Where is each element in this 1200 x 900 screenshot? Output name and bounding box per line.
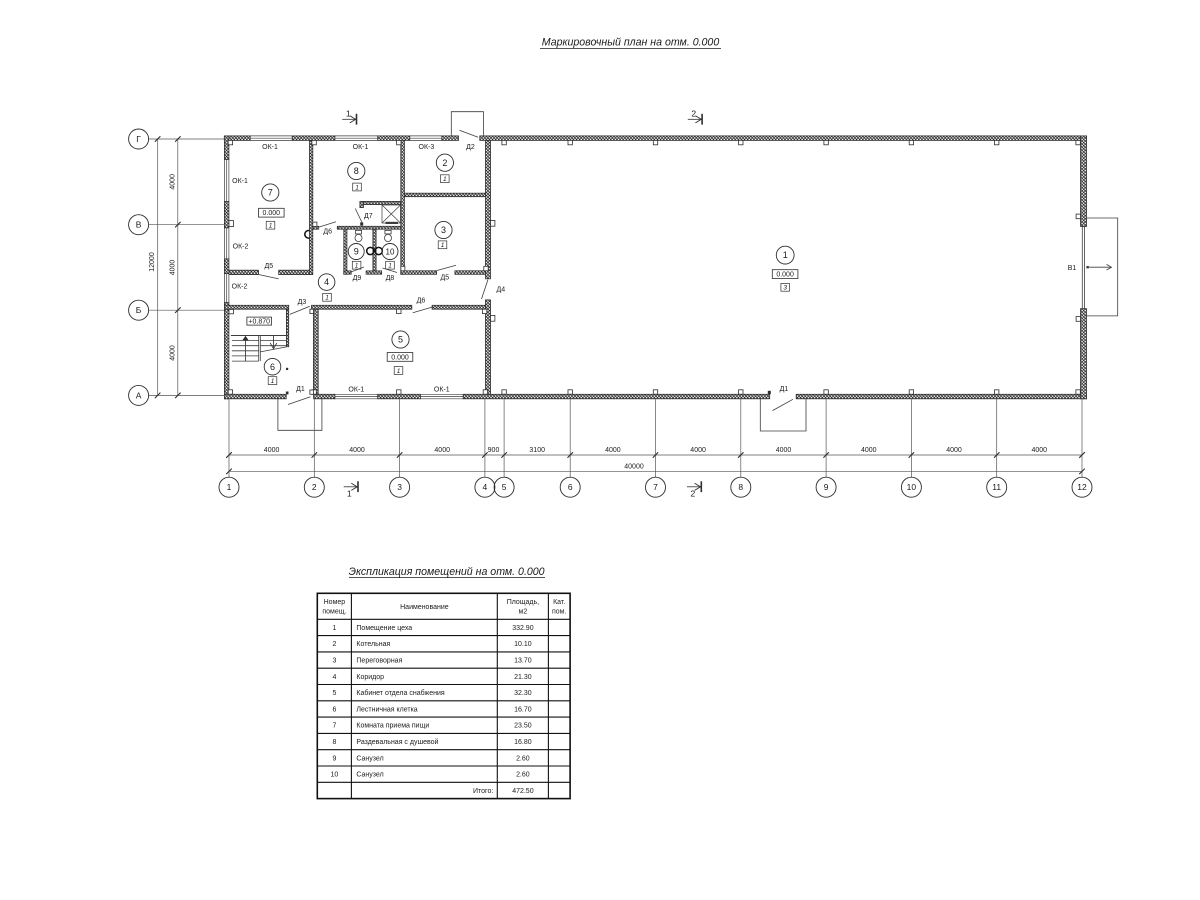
svg-text:3: 3 [441,225,446,235]
svg-text:Д7: Д7 [364,213,373,220]
svg-text:Д8: Д8 [386,275,395,282]
svg-text:Д1: Д1 [296,386,305,393]
svg-text:4: 4 [483,482,488,492]
svg-text:ОК-1: ОК-1 [232,178,248,185]
svg-text:7: 7 [653,482,658,492]
svg-text:Маркировочный план на отм. 0.0: Маркировочный план на отм. 0.000 [542,37,720,49]
svg-text:1: 1 [355,184,359,191]
svg-text:4000: 4000 [169,345,176,361]
svg-text:Д1: Д1 [780,386,789,393]
svg-text:Д5: Д5 [264,263,273,270]
svg-text:Санузел: Санузел [356,772,383,779]
svg-text:4000: 4000 [776,447,792,454]
svg-text:8: 8 [738,482,743,492]
svg-text:7: 7 [268,188,273,198]
svg-text:ОК-2: ОК-2 [232,284,248,291]
svg-text:Д6: Д6 [323,229,332,236]
svg-text:472.50: 472.50 [512,788,534,795]
svg-text:2: 2 [442,158,447,168]
svg-text:Коридор: Коридор [356,674,384,681]
svg-text:9: 9 [332,755,336,762]
svg-text:м2: м2 [519,608,528,615]
svg-text:1: 1 [227,482,232,492]
svg-text:+0.870: +0.870 [248,319,270,326]
svg-text:Д4: Д4 [496,286,505,293]
svg-text:1: 1 [443,176,447,183]
svg-text:4: 4 [324,277,329,287]
svg-text:2: 2 [691,108,696,118]
svg-text:8: 8 [354,166,359,176]
svg-text:12000: 12000 [149,252,156,272]
svg-text:Кат.: Кат. [553,599,565,606]
svg-text:Номер: Номер [324,599,346,606]
svg-text:Котельная: Котельная [356,641,390,648]
svg-text:Лестничная клетка: Лестничная клетка [356,706,417,713]
svg-text:1: 1 [332,625,336,632]
svg-text:332.90: 332.90 [512,625,534,632]
svg-text:6: 6 [270,362,275,372]
svg-text:1: 1 [783,250,788,260]
svg-text:Д2: Д2 [466,144,475,151]
svg-text:32.30: 32.30 [514,690,532,697]
svg-text:Кабинет отдела снабжения: Кабинет отдела снабжения [356,689,444,697]
svg-text:10: 10 [331,772,339,779]
svg-text:2.60: 2.60 [516,772,530,779]
svg-text:Раздевальная с душевой: Раздевальная с душевой [356,738,438,746]
svg-text:1: 1 [269,223,273,230]
svg-text:900: 900 [488,447,500,454]
svg-text:3: 3 [397,482,402,492]
svg-text:5: 5 [398,335,403,345]
svg-text:9: 9 [824,482,829,492]
svg-text:16.70: 16.70 [514,706,532,713]
svg-text:13.70: 13.70 [514,658,532,665]
svg-text:5: 5 [332,690,336,697]
svg-text:ОК-3: ОК-3 [419,144,435,151]
svg-text:ОК-2: ОК-2 [233,243,249,250]
svg-text:Экспликация помещений на отм.: Экспликация помещений на отм. 0.000 [349,566,545,578]
svg-text:1: 1 [347,488,352,498]
svg-text:4000: 4000 [605,447,621,454]
svg-text:16.80: 16.80 [514,739,532,746]
svg-text:4000: 4000 [861,447,877,454]
svg-text:ОК-1: ОК-1 [348,387,364,394]
svg-text:0.000: 0.000 [263,210,281,217]
svg-text:11: 11 [992,482,1001,492]
svg-text:пом.: пом. [552,608,566,615]
svg-text:4000: 4000 [264,447,280,454]
svg-text:4000: 4000 [690,447,706,454]
svg-text:1: 1 [346,108,351,118]
svg-text:В1: В1 [1068,265,1077,272]
svg-text:12: 12 [1077,482,1087,492]
svg-text:0.000: 0.000 [391,354,409,361]
svg-text:1: 1 [271,378,275,385]
svg-text:4000: 4000 [169,260,176,276]
svg-text:1: 1 [355,263,359,270]
svg-text:Д5: Д5 [440,274,449,281]
svg-text:1: 1 [388,263,392,270]
svg-text:В: В [136,220,142,230]
svg-text:1: 1 [325,295,329,302]
svg-text:ОК-1: ОК-1 [434,387,450,394]
svg-text:А: А [136,390,142,400]
svg-text:Д3: Д3 [298,299,307,306]
svg-text:4000: 4000 [349,447,365,454]
svg-text:2.60: 2.60 [516,755,530,762]
svg-text:4: 4 [332,674,336,681]
svg-text:23.50: 23.50 [514,723,532,730]
svg-text:9: 9 [354,247,359,257]
svg-text:4000: 4000 [946,447,962,454]
svg-text:21.30: 21.30 [514,674,532,681]
svg-text:2: 2 [312,482,317,492]
svg-text:Г: Г [136,134,141,144]
svg-text:ОК-1: ОК-1 [262,144,278,151]
svg-text:Д6: Д6 [417,298,426,305]
svg-text:Итого:: Итого: [473,788,493,795]
svg-text:8: 8 [332,739,336,746]
svg-text:6: 6 [568,482,573,492]
svg-text:Переговорная: Переговорная [356,658,402,665]
svg-text:10.10: 10.10 [514,641,532,648]
svg-text:Наименование: Наименование [400,604,449,611]
svg-text:ОК-1: ОК-1 [353,144,369,151]
svg-text:4000: 4000 [434,447,450,454]
svg-text:10: 10 [907,482,917,492]
svg-text:помещ.: помещ. [322,608,346,615]
svg-text:Помещение цеха: Помещение цеха [356,625,412,632]
svg-text:3100: 3100 [529,447,545,454]
svg-text:2: 2 [332,641,336,648]
svg-text:0.000: 0.000 [776,272,794,279]
svg-text:1: 1 [397,368,401,375]
svg-text:Д9: Д9 [353,275,362,282]
svg-text:Санузел: Санузел [356,755,383,762]
svg-text:Площадь,: Площадь, [507,599,539,606]
svg-text:Б: Б [136,305,142,315]
svg-text:3: 3 [332,658,336,665]
svg-text:1: 1 [441,242,445,249]
svg-text:6: 6 [332,706,336,713]
svg-text:3: 3 [783,285,787,292]
svg-text:5: 5 [502,482,507,492]
svg-text:4000: 4000 [169,174,176,190]
svg-text:7: 7 [332,723,336,730]
svg-text:4000: 4000 [1032,447,1048,454]
svg-text:Комната приема пищи: Комната приема пищи [356,723,429,730]
svg-text:10: 10 [386,247,395,256]
svg-text:40000: 40000 [624,464,644,471]
